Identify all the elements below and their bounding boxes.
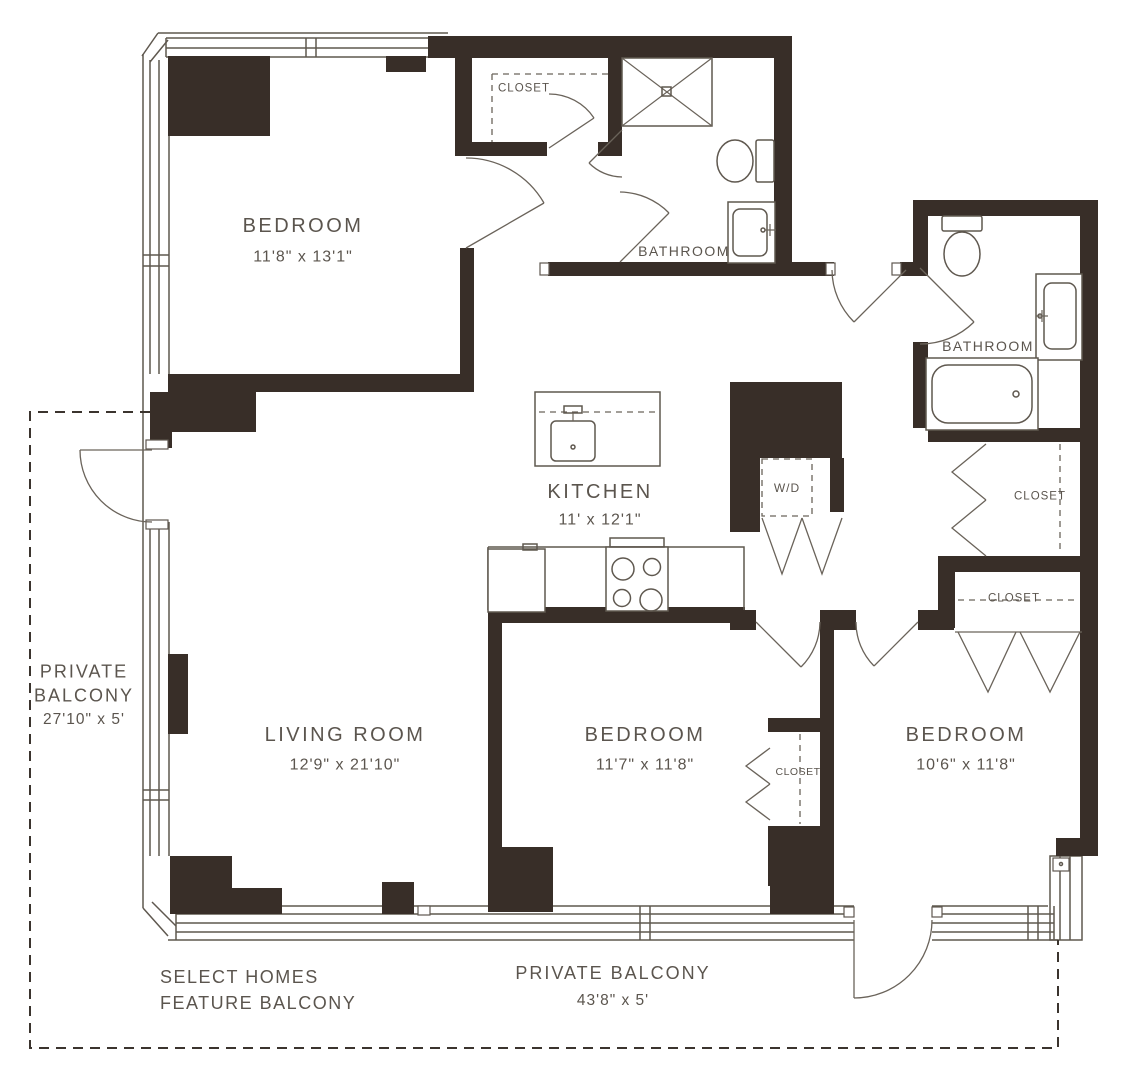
hall-closet-lower-label: CLOSET [988,592,1040,607]
living-room-name: LIVING ROOM [265,722,426,748]
stove-icon [606,538,668,611]
balcony-bottom-dims: 43'8" x 5' [577,991,649,1011]
bedroom-top-dims: 11'8" x 13'1" [253,248,353,269]
bedroom-middle-dims: 11'7" x 11'8" [596,756,694,777]
floor-plan-drawing [0,0,1129,1080]
kitchen-island-icon [535,392,660,466]
balcony-left-name: PRIVATE BALCONY [34,660,134,709]
toilet-icon [717,140,774,182]
sink-icon [1036,274,1082,360]
toilet-icon [942,216,982,276]
shower-icon [589,58,712,177]
bedroom-top-name: BEDROOM [243,213,364,239]
bedroom-middle-name: BEDROOM [585,722,706,748]
kitchen-name: KITCHEN [547,479,652,505]
bedroom-top-closet-label: CLOSET [498,82,550,97]
refrigerator-icon [488,544,545,612]
bedroom-middle-closet-label: CLOSET [775,766,820,780]
balcony-bottom-name: PRIVATE BALCONY [515,961,710,985]
bedroom-right-dims: 10'6" x 11'8" [916,756,1016,777]
kitchen-dims: 11' x 12'1" [559,511,642,532]
balcony-left-dims: 27'10" x 5' [43,710,125,730]
washer-dryer-label: W/D [774,481,800,497]
hall-closet-upper-label: CLOSET [1014,490,1066,505]
bathroom-top-label: BATHROOM [638,242,730,260]
bedroom-right-name: BEDROOM [906,722,1027,748]
bathtub-icon [926,358,1038,430]
bathroom-right-label: BATHROOM [942,337,1034,355]
sink-icon [728,202,776,263]
balcony-note: SELECT HOMES FEATURE BALCONY [160,964,356,1016]
living-room-dims: 12'9" x 21'10" [290,756,401,777]
floor-plan: BEDROOM 11'8" x 13'1" CLOSET BATHROOM BA… [0,0,1129,1080]
